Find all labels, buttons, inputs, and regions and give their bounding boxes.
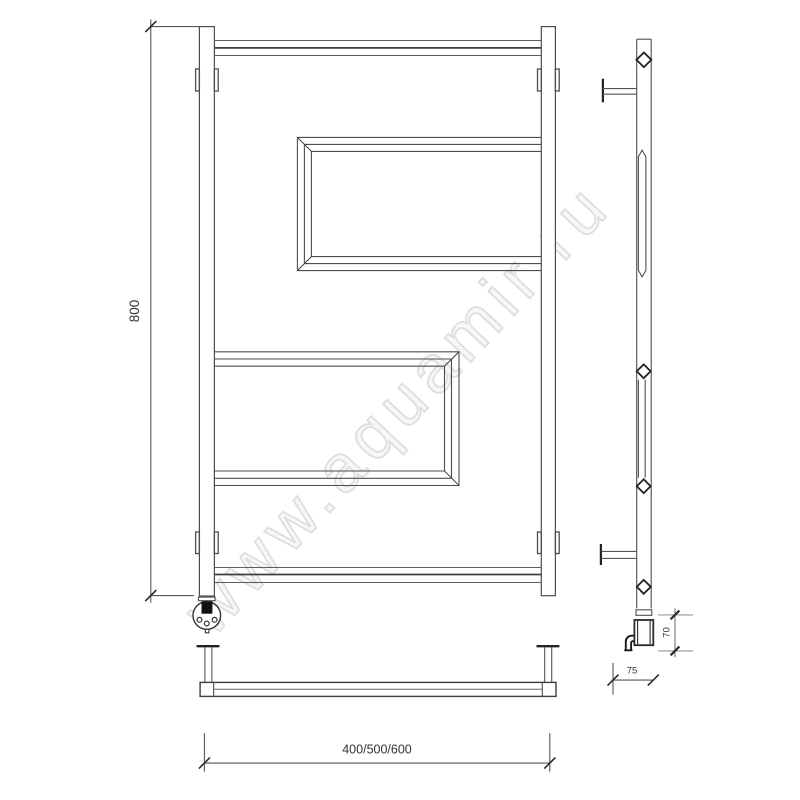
svg-text:70: 70 <box>662 627 673 638</box>
svg-text:75: 75 <box>627 666 638 677</box>
svg-text:400/500/600: 400/500/600 <box>342 743 412 757</box>
svg-text:800: 800 <box>127 300 142 323</box>
